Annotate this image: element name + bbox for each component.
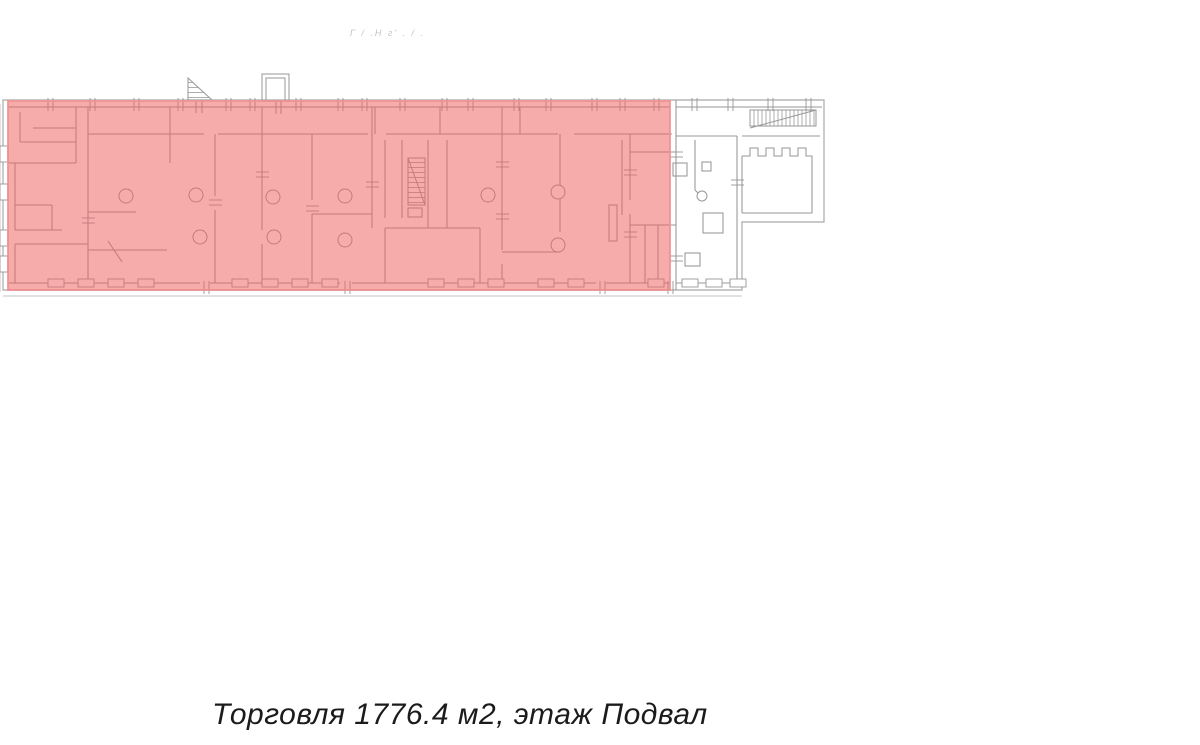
floor-plan-viewer: Г / .Н г' . / . bbox=[0, 0, 1200, 745]
caption: Торговля 1776.4 м2, этаж Подвал bbox=[212, 698, 708, 732]
highlight-overlay[interactable] bbox=[8, 101, 670, 290]
floor-plan bbox=[0, 0, 1200, 745]
